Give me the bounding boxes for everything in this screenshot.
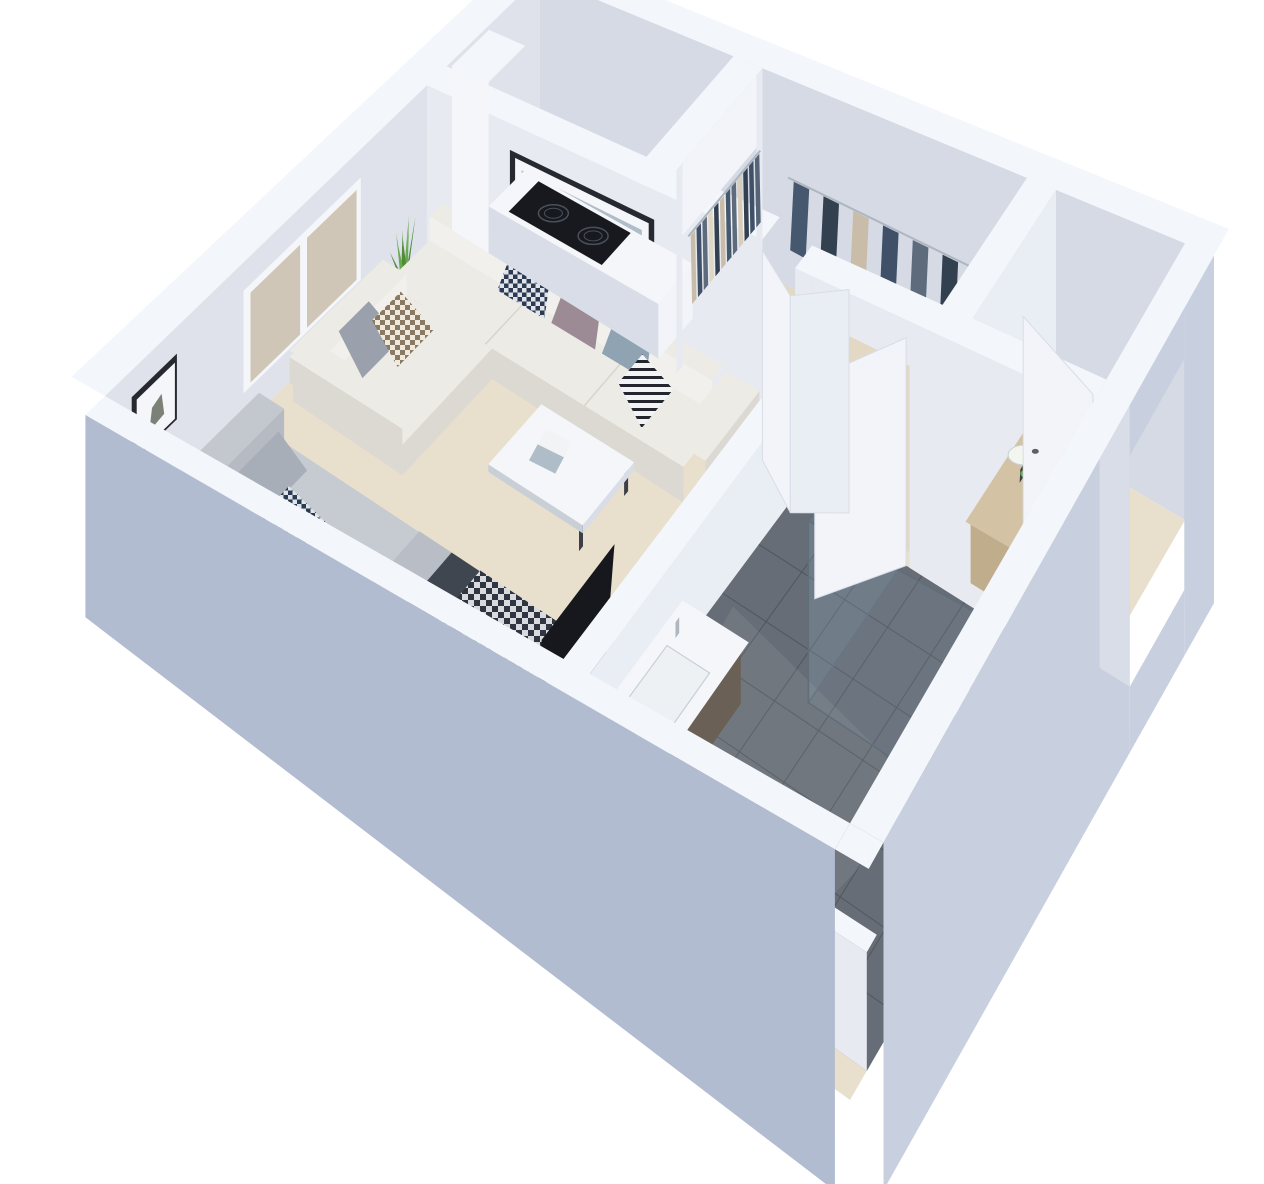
se-exterior-wall-right-segment: [1184, 255, 1214, 656]
floorplan-svg: [0, 0, 1264, 1184]
entry-door-handle: [1032, 449, 1039, 454]
closet-column-left: [676, 163, 682, 373]
kitchen-cabinet-face: [452, 66, 489, 253]
bifold-leaf-2: [790, 290, 849, 513]
floorplan-render: [0, 0, 1264, 1184]
se-entry-sill-slab: [1130, 590, 1185, 753]
